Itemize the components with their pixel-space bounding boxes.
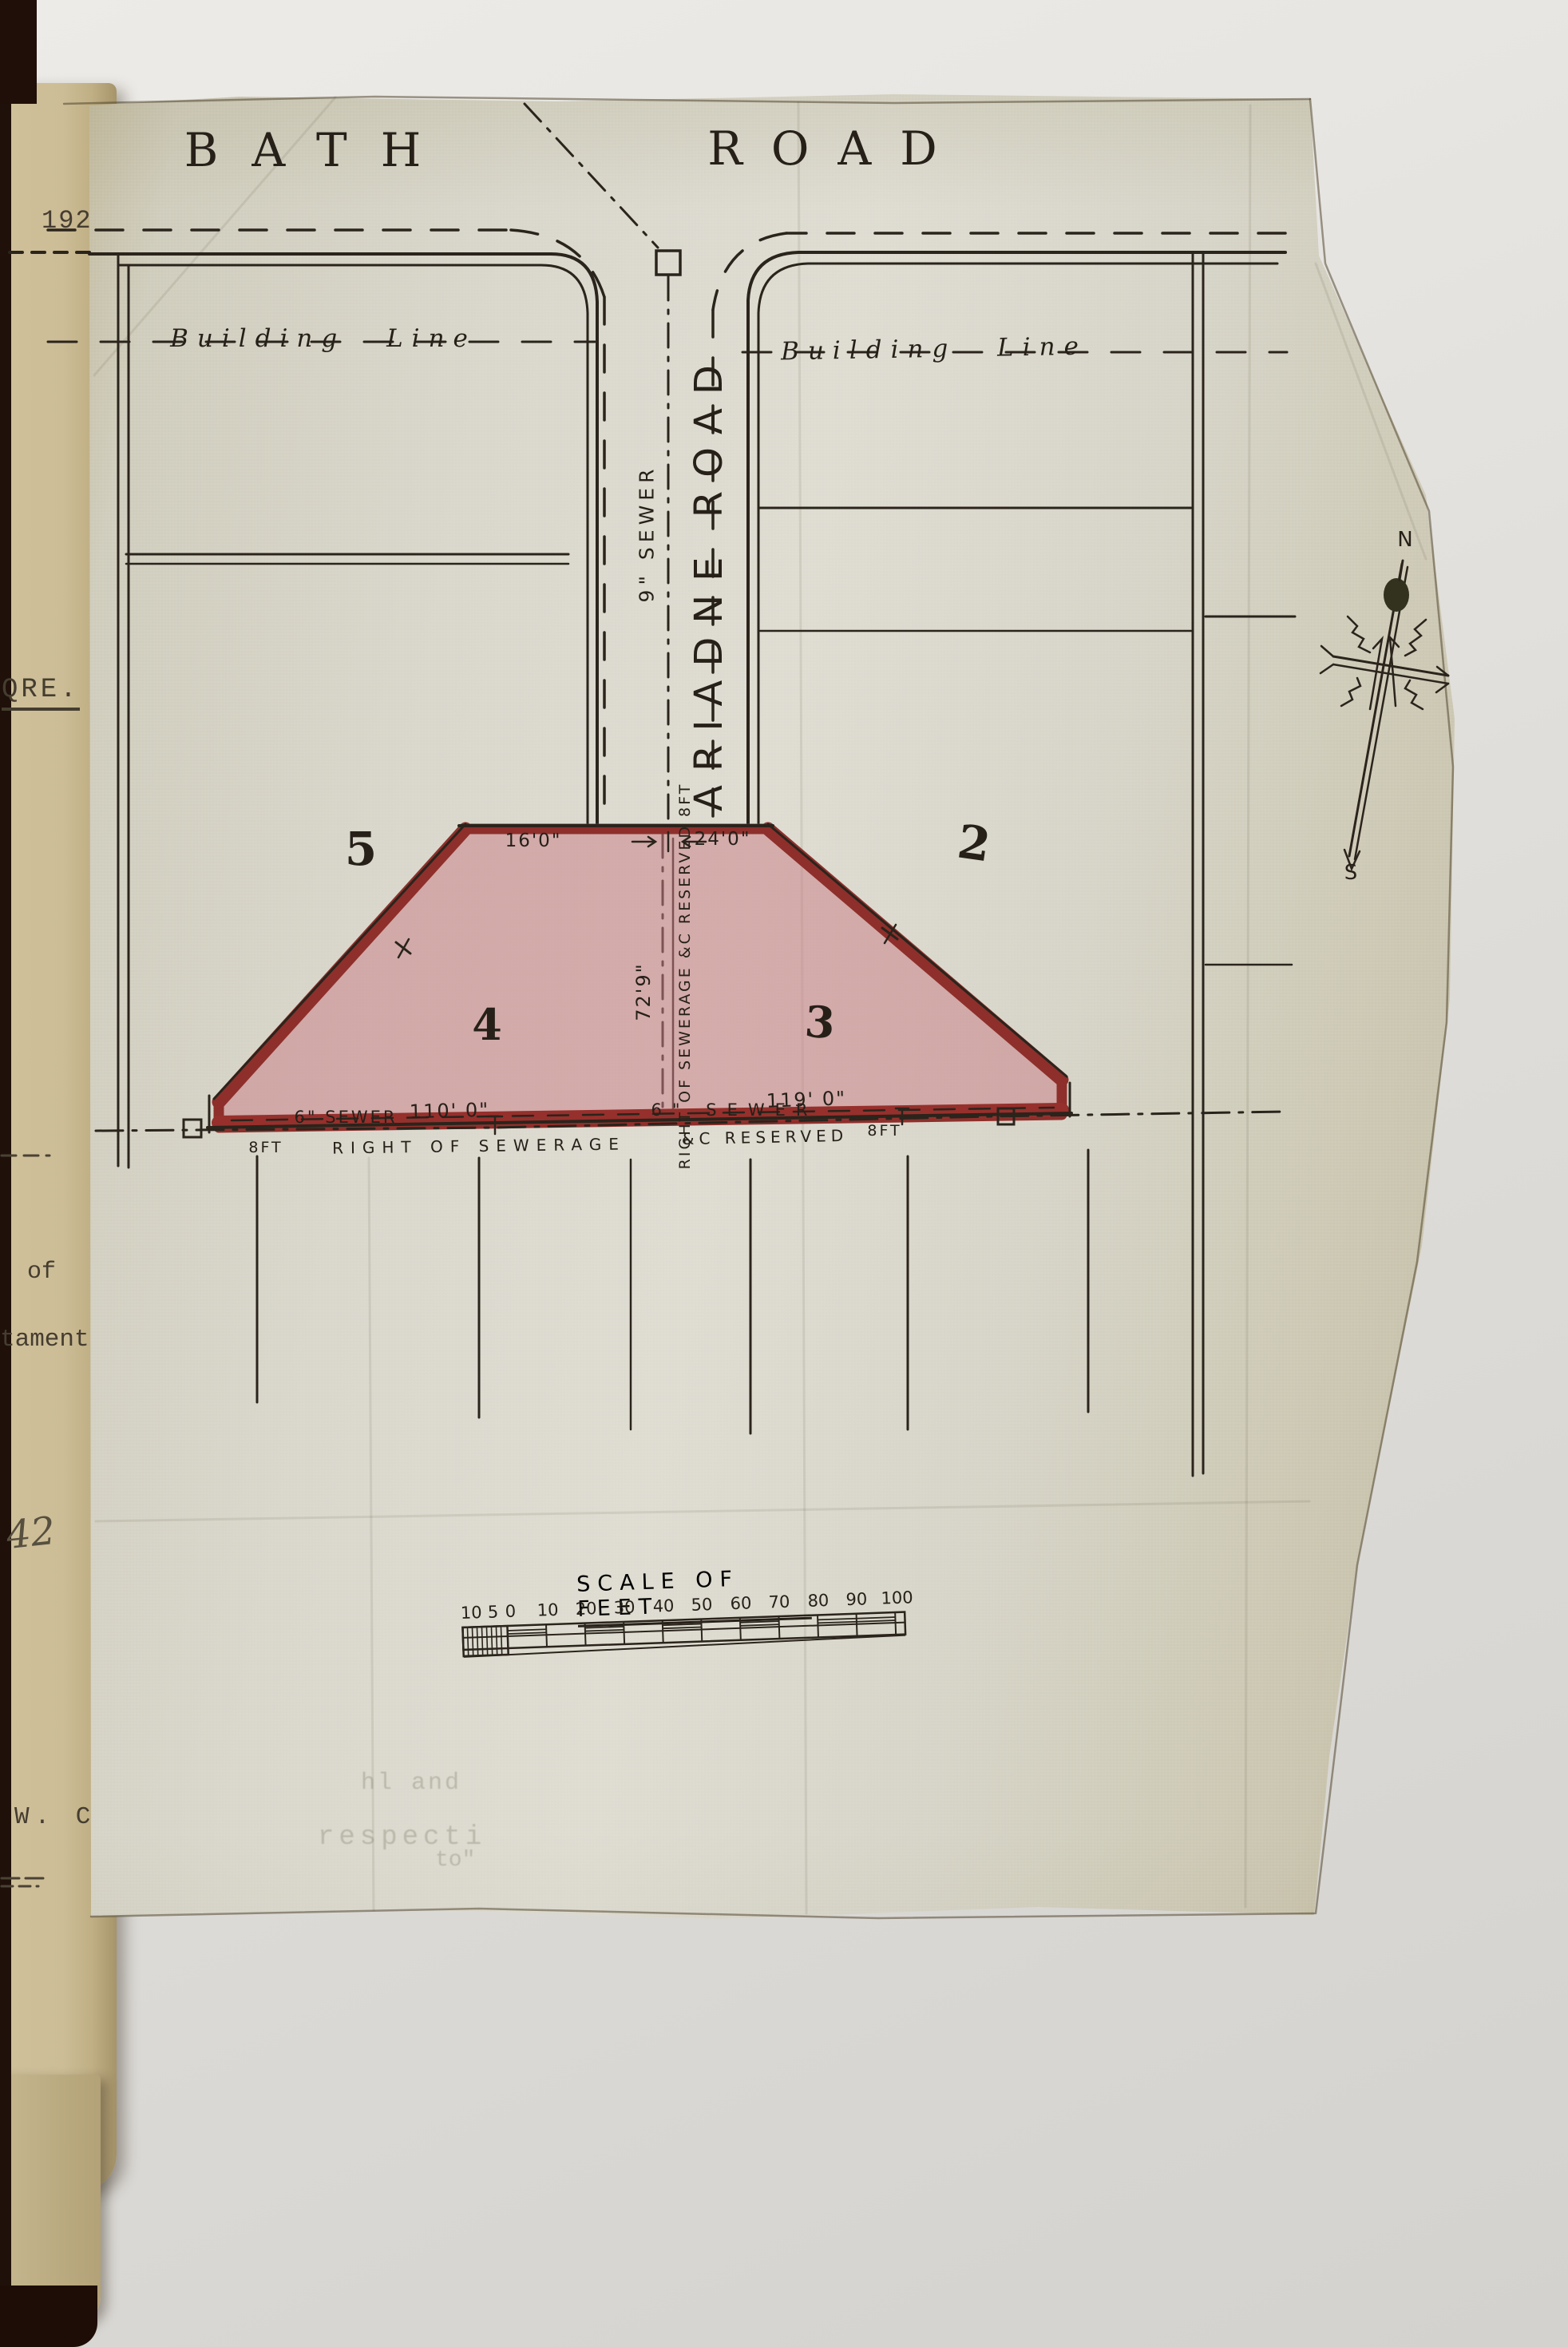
compass-north-label: N — [1397, 528, 1412, 552]
plot-number-5: 5 — [345, 822, 377, 876]
compass-south-label: S — [1344, 861, 1358, 885]
building-line-label-right: Building Line — [781, 332, 1087, 367]
dim-24ft: 24'0" — [695, 829, 751, 850]
scale-40: 40 — [652, 1596, 675, 1616]
scale-90: 90 — [845, 1589, 868, 1609]
scale-50: 50 — [691, 1595, 713, 1615]
plot-number-3: 3 — [803, 996, 837, 1049]
bath-road-label-bath: BATH — [184, 123, 455, 177]
east-boundary-line — [1193, 254, 1203, 1476]
easement-bottom-amp: &C RESERVED — [682, 1126, 849, 1148]
easement-bottom-mid: RIGHT OF SEWERAGE — [332, 1134, 626, 1157]
cover-corner-bottom — [0, 2286, 97, 2347]
easement-8ft-right: 8FT — [867, 1122, 901, 1140]
scale-20: 20 — [575, 1599, 597, 1619]
scale-10: 10 — [537, 1600, 559, 1620]
dim-72ft: 72'9" — [632, 962, 655, 1021]
building-line-label-left: Building Line — [170, 324, 477, 353]
sewer-6in-label-left: 6" SEWER — [295, 1108, 398, 1127]
sewer-9in-label: 9" SEWER — [636, 465, 659, 603]
scale-sub-0: 0 — [505, 1602, 516, 1621]
manhole-square-left — [184, 1120, 201, 1137]
lower-plot-divisions — [257, 1150, 1088, 1433]
west-boundary-line — [118, 254, 129, 1168]
scale-60: 60 — [730, 1593, 752, 1613]
dim-110ft: 110' 0" — [409, 1099, 489, 1124]
scale-70: 70 — [768, 1592, 790, 1612]
bath-road-dashed-boundary — [48, 230, 1285, 824]
scanned-plan-page: 192 QRE. of taments 42 W. C. — [0, 0, 1568, 2347]
margin-dash-marks — [2, 1156, 49, 1886]
dim-16ft: 16'0" — [505, 831, 562, 851]
bath-road-label-road: ROAD — [707, 121, 966, 176]
scale-30: 30 — [613, 1597, 636, 1617]
plot-number-4: 4 — [472, 999, 502, 1050]
scale-80: 80 — [807, 1591, 830, 1611]
easement-8ft-left: 8FT — [248, 1139, 283, 1156]
scale-sub-10: 10 — [460, 1603, 482, 1623]
compass-rose — [1321, 561, 1448, 869]
sewer-6in-label-right: 6" SEWER — [651, 1100, 818, 1120]
manhole-square-junction — [656, 251, 680, 275]
ariadne-road-label: ARIADNE ROAD — [687, 351, 731, 811]
scale-100: 100 — [881, 1588, 913, 1608]
ghost-text-line1: hl and — [361, 1770, 461, 1797]
ghost-text-line3: to" — [435, 1848, 475, 1873]
scale-sub-5: 5 — [487, 1602, 498, 1621]
scale-ruler-graphic — [461, 1608, 925, 1669]
